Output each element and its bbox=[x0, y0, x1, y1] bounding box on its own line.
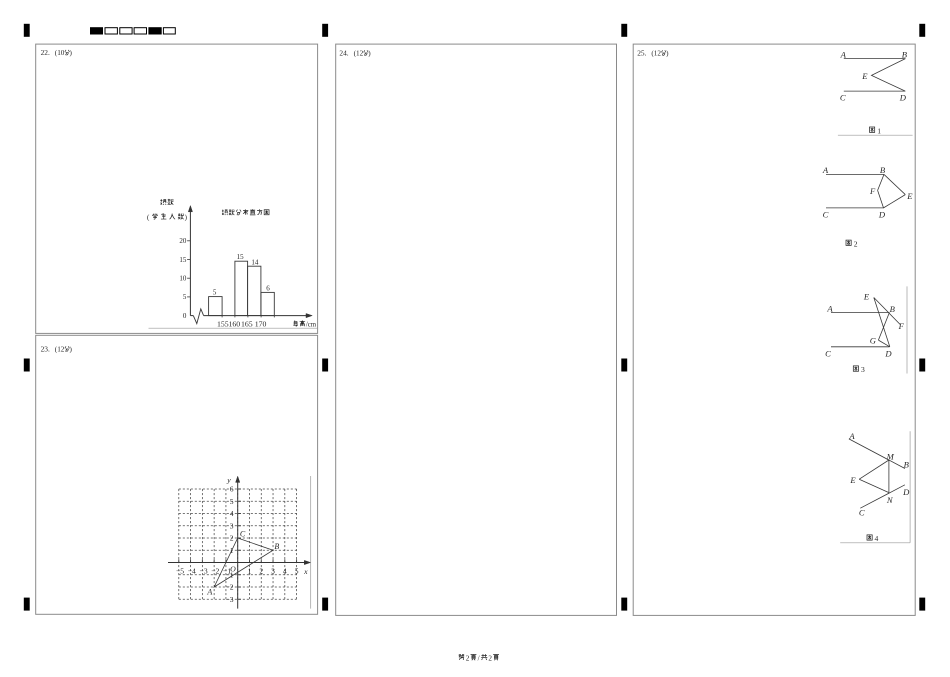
svg-text:4: 4 bbox=[875, 534, 879, 543]
svg-text:D: D bbox=[899, 92, 907, 102]
svg-text:A: A bbox=[822, 165, 829, 175]
svg-text:10: 10 bbox=[179, 275, 187, 283]
svg-text:160: 160 bbox=[228, 320, 240, 329]
svg-text:A: A bbox=[848, 431, 855, 441]
svg-text:C: C bbox=[859, 507, 865, 517]
svg-text:B: B bbox=[880, 165, 886, 175]
svg-text:B: B bbox=[902, 50, 908, 60]
svg-text:(12: (12 bbox=[354, 49, 364, 57]
svg-text:A: A bbox=[206, 587, 212, 596]
svg-text:C: C bbox=[825, 348, 831, 358]
svg-text:2: 2 bbox=[488, 654, 492, 662]
svg-text:2: 2 bbox=[230, 534, 234, 543]
svg-text:3: 3 bbox=[230, 521, 234, 530]
svg-text:−2: −2 bbox=[211, 566, 219, 575]
svg-text:22.: 22. bbox=[41, 48, 50, 57]
svg-text:1: 1 bbox=[877, 126, 881, 135]
svg-text:B: B bbox=[274, 542, 279, 551]
svg-text:24.: 24. bbox=[339, 48, 348, 57]
svg-text:C: C bbox=[840, 92, 846, 102]
svg-text:D: D bbox=[884, 348, 892, 358]
svg-text:2: 2 bbox=[854, 239, 858, 248]
svg-text:M: M bbox=[886, 451, 895, 461]
svg-text:E: E bbox=[861, 71, 868, 81]
svg-text:4: 4 bbox=[283, 566, 287, 575]
svg-text:2: 2 bbox=[466, 654, 470, 662]
svg-text:3: 3 bbox=[271, 566, 275, 575]
svg-text:D: D bbox=[902, 487, 910, 497]
svg-text:6: 6 bbox=[230, 485, 234, 494]
svg-text:/: / bbox=[478, 654, 480, 662]
svg-text:0: 0 bbox=[183, 312, 187, 320]
svg-text:4: 4 bbox=[230, 509, 234, 518]
svg-text:−3: −3 bbox=[200, 566, 208, 575]
svg-text:20: 20 bbox=[179, 237, 187, 245]
svg-text:G: G bbox=[870, 335, 877, 345]
svg-text:(10: (10 bbox=[55, 49, 65, 57]
svg-text:−5: −5 bbox=[176, 566, 184, 575]
svg-text:x: x bbox=[303, 567, 308, 576]
svg-text:5: 5 bbox=[213, 288, 217, 296]
svg-text:1: 1 bbox=[248, 566, 252, 575]
svg-text:B: B bbox=[904, 459, 910, 469]
svg-text:23.: 23. bbox=[41, 344, 50, 353]
svg-text:2: 2 bbox=[259, 566, 263, 575]
svg-text:E: E bbox=[906, 191, 913, 201]
svg-text:165: 165 bbox=[241, 320, 253, 329]
svg-text:6: 6 bbox=[266, 284, 270, 292]
svg-text:(12: (12 bbox=[651, 49, 661, 57]
svg-text:5: 5 bbox=[230, 497, 234, 506]
svg-text:−3: −3 bbox=[226, 595, 234, 604]
svg-text:E: E bbox=[863, 291, 870, 301]
svg-text:14: 14 bbox=[251, 258, 259, 266]
svg-text:(12: (12 bbox=[55, 345, 65, 353]
svg-text:y: y bbox=[226, 476, 231, 485]
svg-text:C: C bbox=[823, 210, 829, 220]
svg-text:A: A bbox=[840, 50, 847, 60]
svg-text:B: B bbox=[890, 304, 896, 314]
svg-text:F: F bbox=[869, 186, 876, 196]
svg-text:5: 5 bbox=[295, 566, 299, 575]
svg-text:O: O bbox=[230, 564, 236, 573]
svg-text:C: C bbox=[240, 529, 246, 538]
svg-text:170: 170 bbox=[255, 320, 267, 329]
svg-text:/cm: /cm bbox=[306, 321, 317, 328]
svg-text:3: 3 bbox=[861, 365, 865, 374]
svg-text:5: 5 bbox=[183, 293, 187, 301]
svg-text:F: F bbox=[898, 321, 905, 331]
svg-text:−4: −4 bbox=[188, 566, 196, 575]
svg-text:155: 155 bbox=[217, 320, 229, 329]
svg-text:D: D bbox=[878, 210, 886, 220]
svg-text:15: 15 bbox=[237, 253, 245, 261]
svg-text:15: 15 bbox=[179, 256, 187, 264]
svg-text:25.: 25. bbox=[637, 48, 646, 57]
svg-text:−2: −2 bbox=[226, 583, 234, 592]
svg-text:E: E bbox=[849, 475, 856, 485]
svg-text:A: A bbox=[826, 303, 833, 313]
